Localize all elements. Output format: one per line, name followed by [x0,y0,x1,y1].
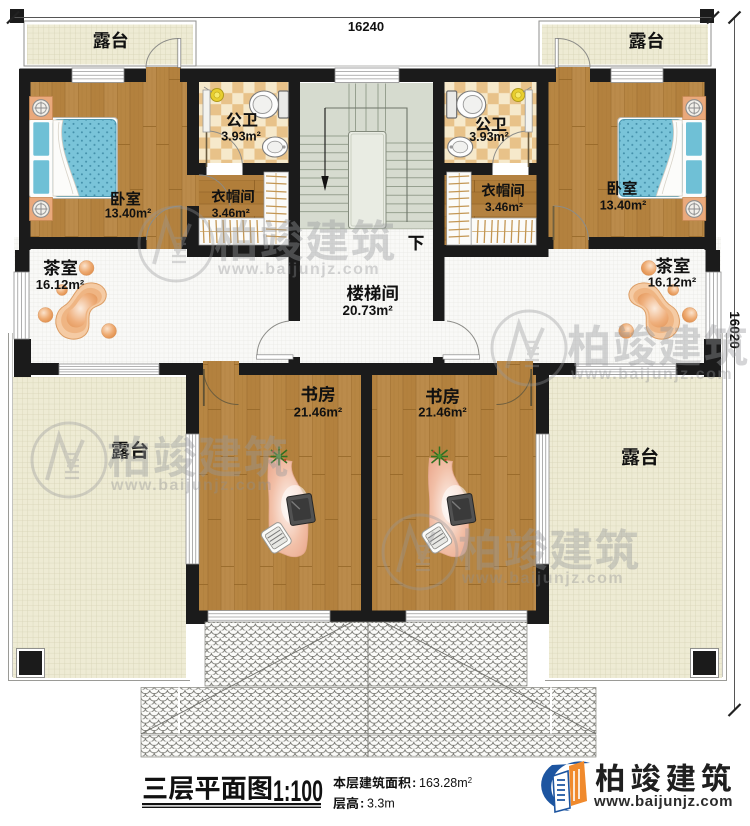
svg-text:www.baijunjz.com: www.baijunjz.com [217,261,380,278]
svg-text:163.28m2: 163.28m2 [419,776,473,790]
svg-text:3.46m²: 3.46m² [212,206,250,220]
svg-text:13.40m²: 13.40m² [600,198,647,212]
svg-text:21.46m²: 21.46m² [418,405,467,420]
svg-text:www.baijunjz.com: www.baijunjz.com [593,793,733,810]
svg-text::: : [412,775,416,790]
svg-text:3.3m: 3.3m [367,797,395,811]
svg-text::: : [360,796,364,811]
svg-text:20.73m²: 20.73m² [342,303,393,318]
svg-text:www.baijunjz.com: www.baijunjz.com [461,570,624,587]
svg-text:16.12m²: 16.12m² [648,275,697,290]
svg-text:3.93m²: 3.93m² [469,130,509,144]
svg-text:21.46m²: 21.46m² [294,405,343,420]
svg-text:www.baijunjz.com: www.baijunjz.com [570,366,733,383]
svg-text:16.12m²: 16.12m² [36,277,85,292]
svg-text:3.93m²: 3.93m² [221,129,261,143]
svg-text:16240: 16240 [348,19,384,34]
svg-text:13.40m²: 13.40m² [105,206,152,220]
svg-text:www.baijunjz.com: www.baijunjz.com [110,477,273,494]
svg-text:3.46m²: 3.46m² [485,200,523,214]
